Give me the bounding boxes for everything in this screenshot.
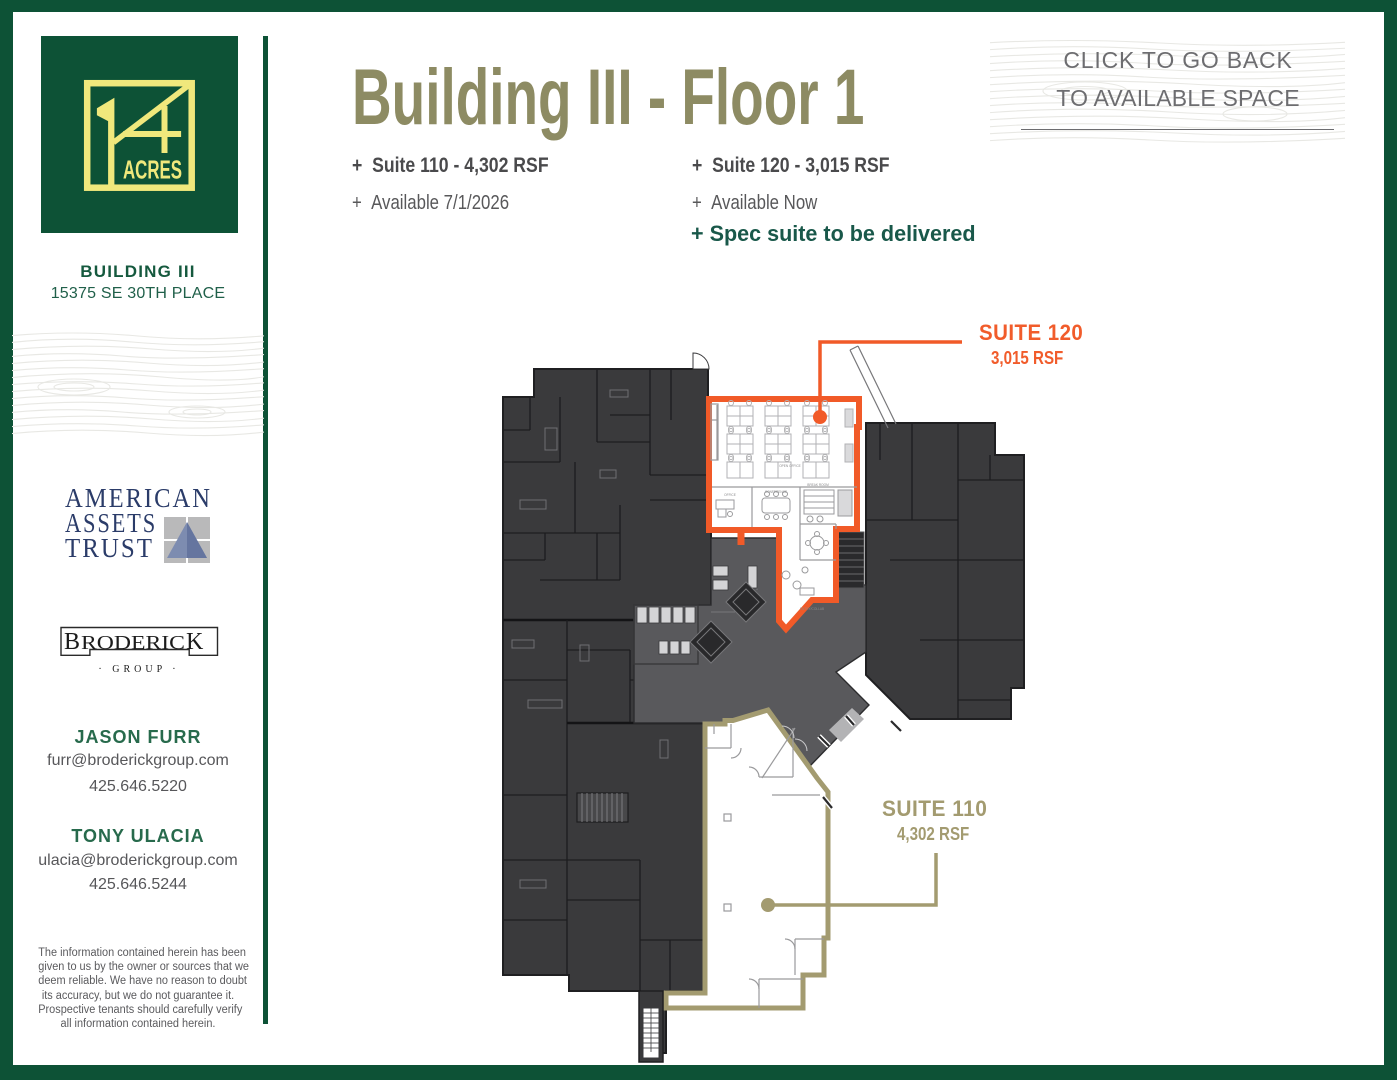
svg-text:ENTRY/COLLAB: ENTRY/COLLAB (800, 607, 824, 611)
svg-text:K: K (186, 629, 204, 655)
svg-text:TRUST: TRUST (65, 533, 154, 563)
svg-text:ACRES: ACRES (123, 155, 182, 185)
svg-text:CONFERENCE: CONFERENCE (765, 490, 787, 494)
svg-text:BREAK ROOM: BREAK ROOM (807, 483, 829, 487)
svg-text:OFFICE: OFFICE (724, 493, 736, 497)
svg-text:B: B (64, 629, 80, 655)
svg-text:· GROUP ·: · GROUP · (98, 664, 179, 675)
svg-text:RODERIC: RODERIC (81, 632, 185, 654)
svg-text:OPEN OFFICE: OPEN OFFICE (779, 464, 801, 468)
